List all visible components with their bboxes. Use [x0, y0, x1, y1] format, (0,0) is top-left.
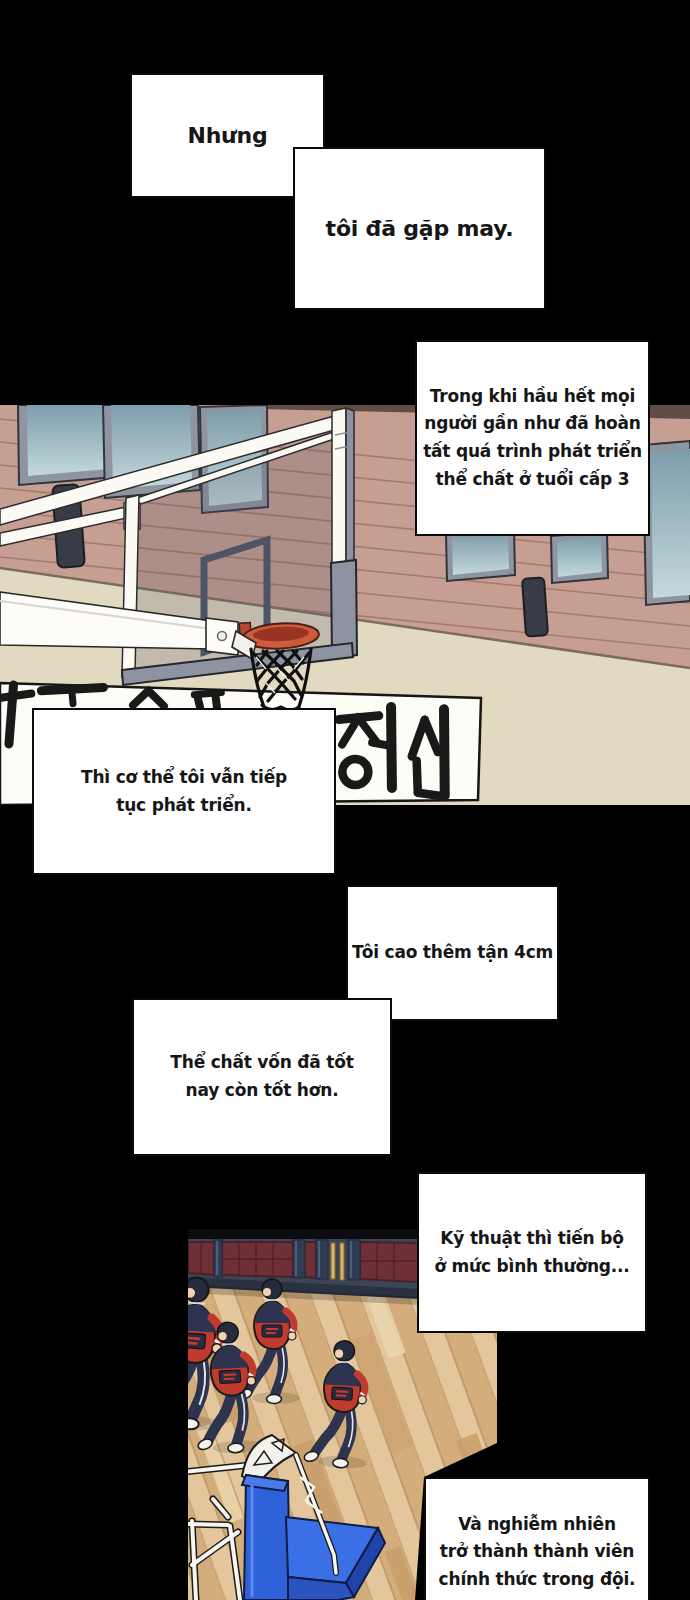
caption-box: Kỹ thuật thì tiến bộ ở mức bình thường..…: [417, 1172, 647, 1333]
caption-line: người gần như đã hoàn: [424, 410, 640, 438]
caption-line: Nhưng: [187, 118, 267, 154]
caption-line: thể chất ở tuổi cấp 3: [436, 466, 630, 494]
caption-line: chính thức trong đội.: [439, 1566, 636, 1594]
caption-line: Và nghiễm nhiên: [458, 1511, 616, 1539]
caption-line: Thể chất vốn đã tốt: [170, 1049, 353, 1077]
caption-box: Trong khi hầu hết mọi người gần như đã h…: [415, 340, 650, 536]
caption-line: tôi đã gặp may.: [326, 211, 514, 247]
caption-box: Và nghiễm nhiên trở thành thành viên chí…: [424, 1477, 650, 1600]
caption-line: Trong khi hầu hết mọi: [430, 383, 635, 411]
caption-line: nay còn tốt hơn.: [186, 1077, 339, 1105]
caption-box: Thì cơ thể tôi vẫn tiếp tục phát triển.: [32, 708, 336, 875]
caption-box: tôi đã gặp may.: [293, 147, 546, 310]
caption-line: tất quá trình phát triển: [423, 438, 642, 466]
caption-line: Thì cơ thể tôi vẫn tiếp: [81, 764, 287, 792]
webtoon-page: 정신: [0, 0, 690, 1600]
caption-line: ở mức bình thường...: [434, 1253, 629, 1281]
caption-line: Kỹ thuật thì tiến bộ: [440, 1225, 623, 1253]
caption-line: trở thành thành viên: [440, 1538, 634, 1566]
caption-line: tục phát triển.: [116, 792, 251, 820]
caption-box: Thể chất vốn đã tốt nay còn tốt hơn.: [132, 998, 392, 1156]
caption-line: Tôi cao thêm tận 4cm: [352, 939, 553, 967]
